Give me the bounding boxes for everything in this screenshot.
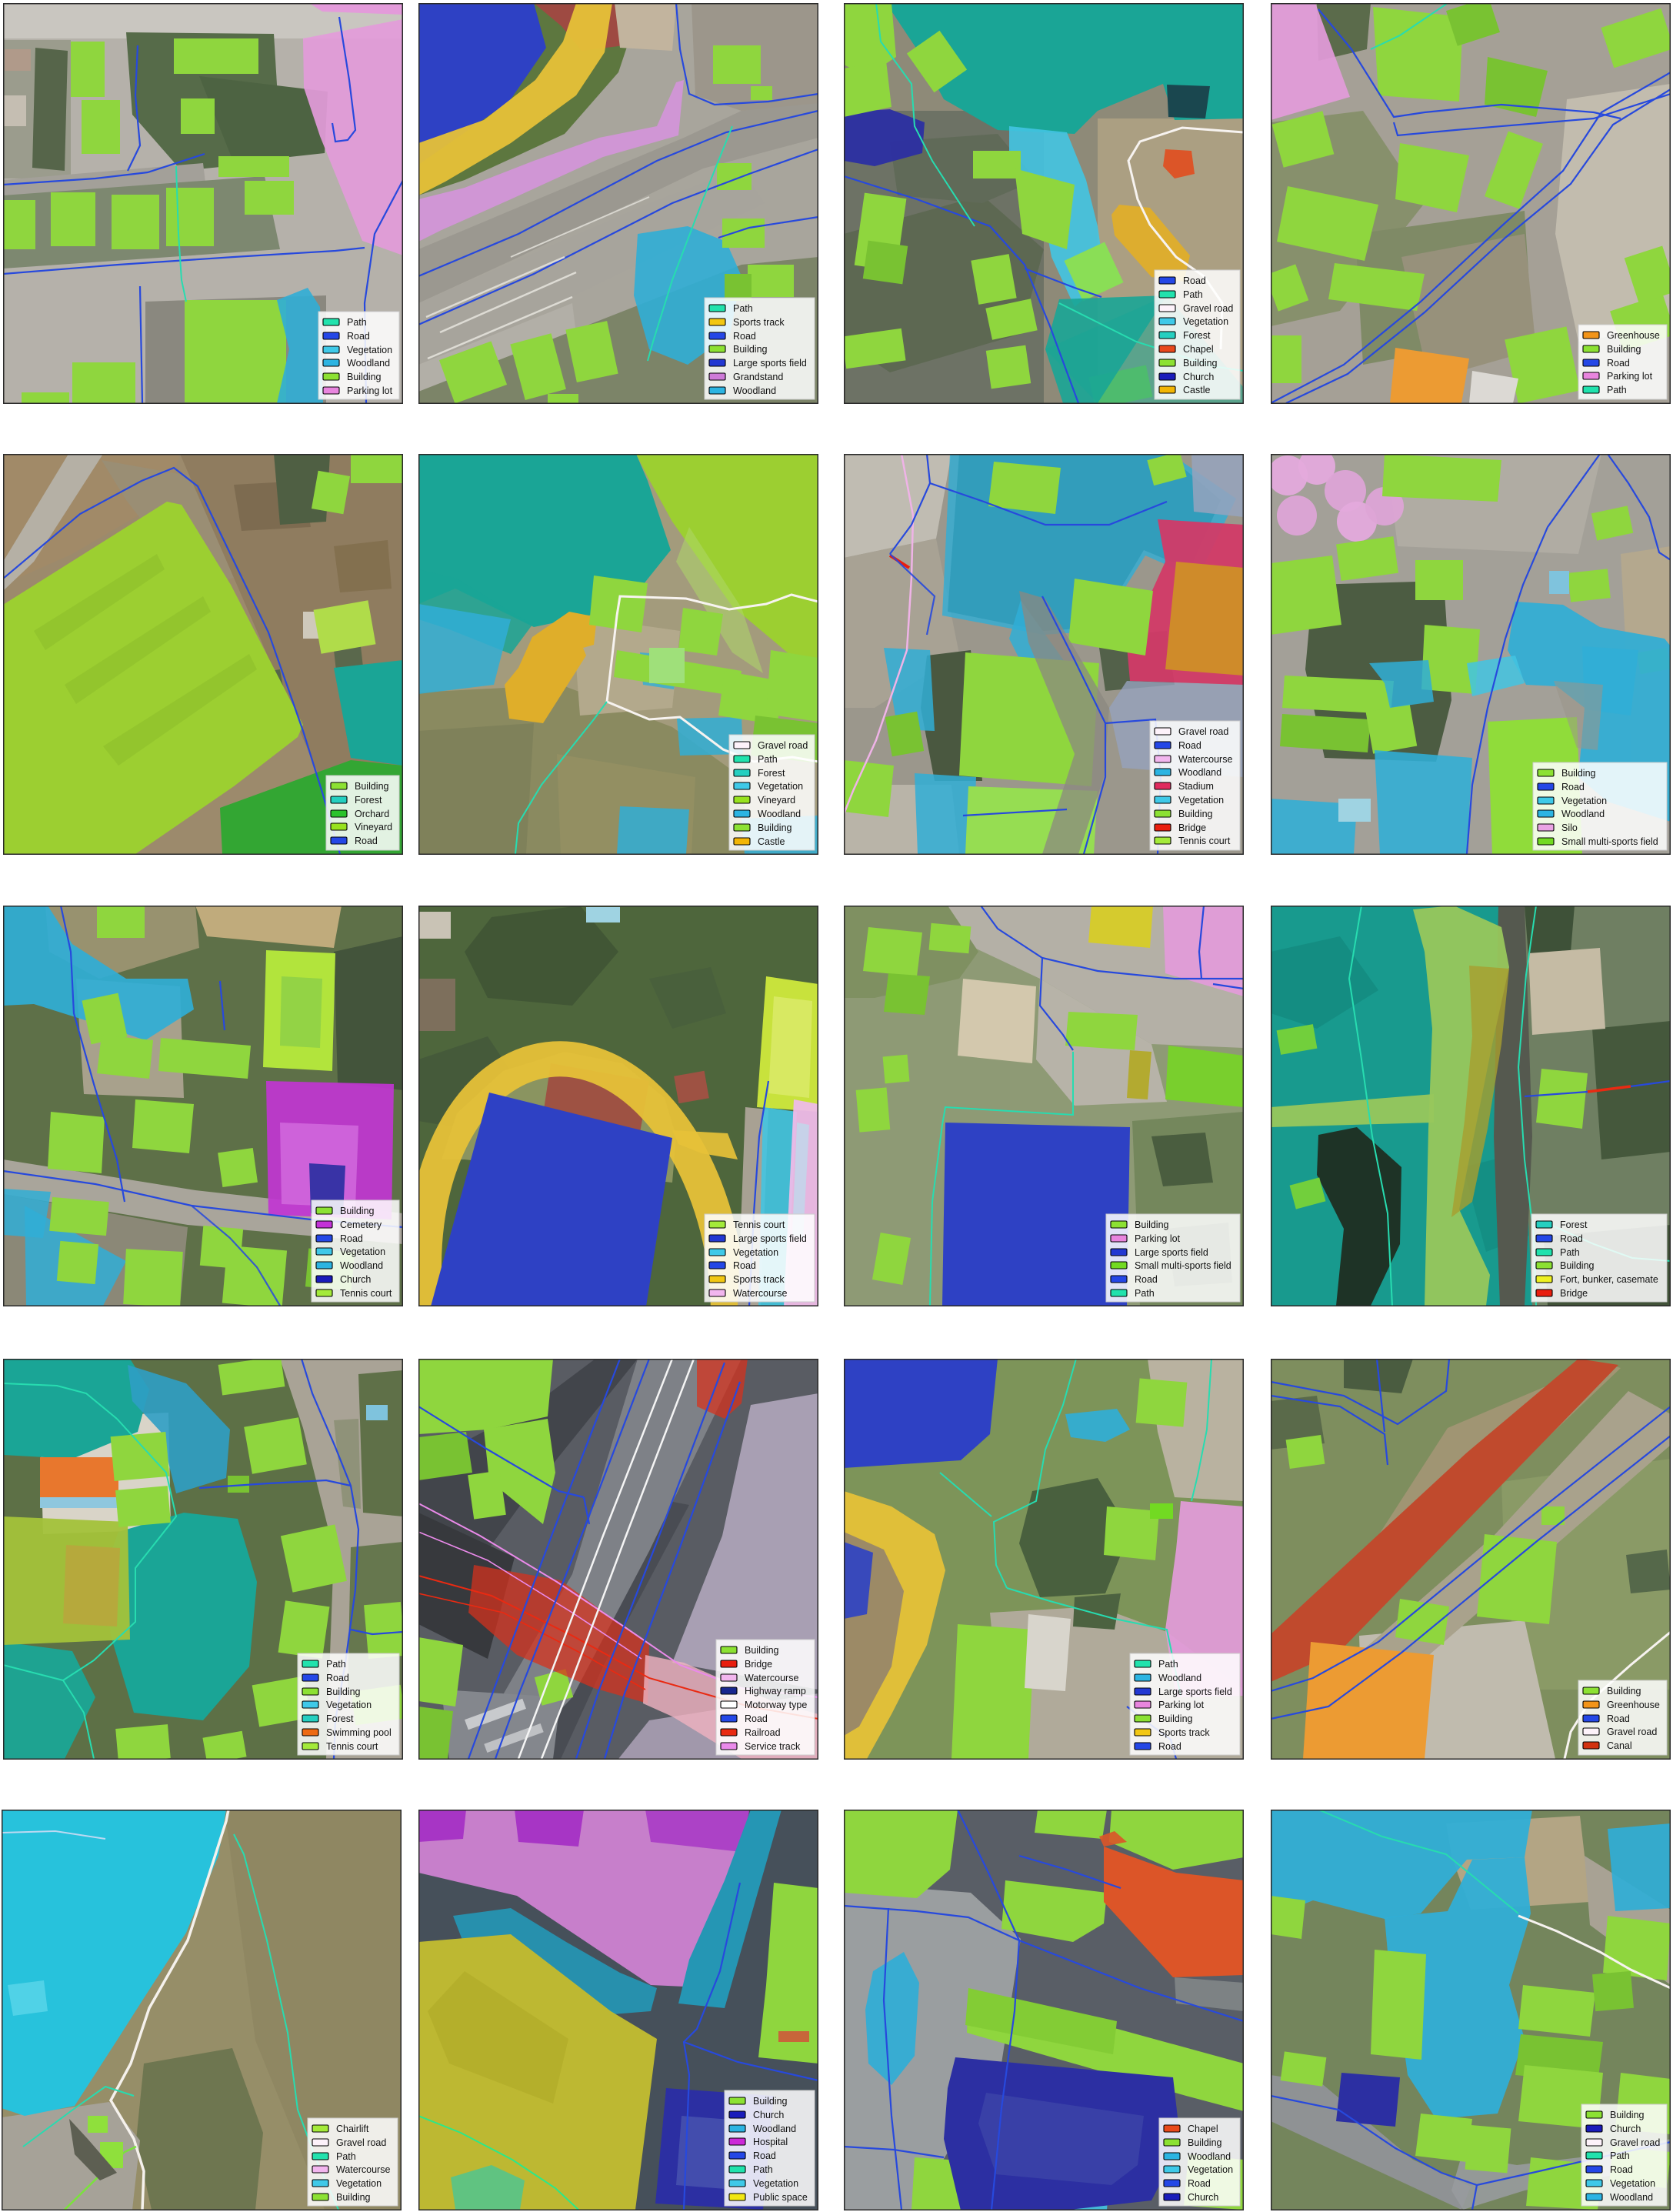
svg-text:Tennis court: Tennis court (340, 1288, 392, 1299)
svg-text:Sports track: Sports track (1158, 1727, 1210, 1738)
svg-text:Fort, bunker, casemate: Fort, bunker, casemate (1560, 1274, 1658, 1285)
svg-text:Road: Road (1607, 1713, 1630, 1724)
svg-text:Building: Building (336, 2192, 371, 2203)
svg-text:Woodland: Woodland (1178, 767, 1221, 778)
svg-text:Chairlift: Chairlift (336, 2124, 369, 2134)
svg-text:Gravel road: Gravel road (1610, 2137, 1660, 2148)
svg-text:Building: Building (1188, 2137, 1222, 2148)
svg-text:Parking lot: Parking lot (1158, 1700, 1205, 1710)
svg-text:Road: Road (1561, 782, 1585, 792)
svg-text:Vegetation: Vegetation (1183, 316, 1228, 327)
svg-text:Building: Building (1183, 358, 1218, 369)
svg-text:Vegetation: Vegetation (336, 2178, 382, 2189)
svg-text:Large sports field: Large sports field (1158, 1687, 1232, 1697)
svg-text:Public space: Public space (753, 2192, 808, 2203)
svg-text:Vegetation: Vegetation (1610, 2178, 1655, 2189)
svg-text:Vegetation: Vegetation (347, 345, 392, 355)
svg-text:Building: Building (340, 1206, 375, 1216)
svg-text:Path: Path (1560, 1247, 1580, 1258)
svg-text:Woodland: Woodland (753, 2124, 796, 2134)
svg-text:Grandstand: Grandstand (733, 372, 783, 382)
svg-text:Road: Road (1135, 1274, 1158, 1285)
svg-text:Church: Church (1610, 2124, 1641, 2134)
svg-text:Parking lot: Parking lot (1135, 1233, 1181, 1244)
svg-text:Road: Road (753, 2150, 776, 2161)
svg-text:Vegetation: Vegetation (1561, 796, 1607, 806)
svg-text:Vineyard: Vineyard (758, 795, 795, 806)
svg-text:Building: Building (733, 344, 768, 355)
svg-text:Gravel road: Gravel road (336, 2137, 386, 2148)
svg-text:Castle: Castle (758, 836, 785, 847)
svg-text:Building: Building (758, 822, 792, 833)
svg-text:Forest: Forest (355, 795, 382, 806)
svg-text:Tennis court: Tennis court (1178, 836, 1231, 846)
svg-text:Cemetery: Cemetery (340, 1219, 382, 1230)
svg-text:Tennis court: Tennis court (326, 1741, 378, 1752)
svg-text:Building: Building (347, 372, 382, 382)
svg-text:Woodland: Woodland (1561, 809, 1605, 819)
svg-text:Building: Building (1158, 1713, 1193, 1724)
svg-text:Vegetation: Vegetation (1178, 795, 1224, 806)
svg-text:Road: Road (1183, 275, 1206, 286)
svg-text:Watercourse: Watercourse (745, 1673, 798, 1683)
svg-text:Road: Road (340, 1233, 363, 1244)
svg-text:Vegetation: Vegetation (758, 781, 803, 792)
svg-text:Building: Building (355, 781, 389, 792)
svg-text:Path: Path (1158, 1659, 1178, 1670)
svg-text:Road: Road (733, 331, 756, 342)
svg-text:Watercourse: Watercourse (733, 1288, 787, 1299)
svg-text:Bridge: Bridge (1178, 822, 1206, 833)
svg-text:Motorway type: Motorway type (745, 1700, 807, 1710)
svg-text:Woodland: Woodland (347, 358, 390, 369)
svg-text:Forest: Forest (1183, 330, 1211, 341)
svg-text:Parking lot: Parking lot (1607, 371, 1653, 382)
svg-text:Building: Building (326, 1687, 361, 1697)
svg-text:Large sports field: Large sports field (1135, 1247, 1208, 1258)
svg-text:Greenhouse: Greenhouse (1607, 330, 1660, 341)
svg-text:Road: Road (1560, 1233, 1583, 1244)
svg-text:Forest: Forest (758, 768, 785, 779)
svg-text:Vegetation: Vegetation (326, 1700, 372, 1710)
svg-text:Woodland: Woodland (1188, 2151, 1231, 2162)
svg-text:Chapel: Chapel (1188, 2124, 1218, 2134)
svg-text:Road: Road (745, 1713, 768, 1724)
svg-text:Gravel road: Gravel road (1183, 303, 1233, 314)
svg-text:Greenhouse: Greenhouse (1607, 1700, 1660, 1710)
svg-text:Church: Church (753, 2110, 784, 2120)
svg-text:Path: Path (753, 2164, 773, 2175)
svg-text:Road: Road (1178, 740, 1201, 751)
svg-text:Road: Road (355, 836, 378, 846)
svg-text:Building: Building (1607, 344, 1641, 355)
svg-text:Railroad: Railroad (745, 1727, 781, 1738)
svg-text:Building: Building (1135, 1219, 1169, 1230)
svg-text:Sports track: Sports track (733, 317, 785, 328)
svg-text:Vegetation: Vegetation (340, 1246, 385, 1257)
svg-text:Gravel road: Gravel road (758, 740, 808, 751)
svg-text:Vegetation: Vegetation (1188, 2164, 1233, 2175)
svg-text:Path: Path (326, 1659, 346, 1670)
svg-text:Gravel road: Gravel road (1178, 726, 1228, 737)
svg-text:Small multi-sports field: Small multi-sports field (1561, 836, 1658, 847)
svg-text:Path: Path (1610, 2150, 1630, 2161)
svg-text:Large sports field: Large sports field (733, 1233, 807, 1244)
svg-text:Forest: Forest (1560, 1219, 1588, 1230)
svg-text:Path: Path (758, 754, 778, 765)
svg-text:Swimming pool: Swimming pool (326, 1727, 392, 1738)
svg-text:Path: Path (733, 303, 753, 314)
svg-text:Watercourse: Watercourse (336, 2164, 390, 2175)
svg-text:Road: Road (733, 1260, 756, 1271)
svg-text:Path: Path (336, 2151, 356, 2162)
svg-text:Gravel road: Gravel road (1607, 1727, 1657, 1737)
svg-text:Service track: Service track (745, 1741, 801, 1752)
svg-text:Sports track: Sports track (733, 1274, 785, 1285)
svg-text:Building: Building (1178, 809, 1213, 819)
svg-text:Chapel: Chapel (1183, 344, 1214, 355)
svg-text:Building: Building (1561, 768, 1596, 779)
svg-text:Building: Building (1560, 1260, 1595, 1271)
svg-text:Canal: Canal (1607, 1740, 1632, 1751)
svg-text:Building: Building (753, 2096, 788, 2107)
svg-text:Castle: Castle (1183, 385, 1210, 395)
svg-text:Vegetation: Vegetation (733, 1247, 778, 1258)
svg-text:Woodland: Woodland (1610, 2192, 1653, 2203)
svg-text:Watercourse: Watercourse (1178, 754, 1232, 765)
svg-text:Large sports field: Large sports field (733, 358, 807, 369)
svg-text:Woodland: Woodland (758, 809, 801, 819)
svg-text:Road: Road (347, 331, 370, 342)
svg-text:Church: Church (340, 1274, 371, 1285)
svg-text:Path: Path (1607, 385, 1627, 395)
svg-text:Vineyard: Vineyard (355, 822, 392, 832)
svg-text:Hospital: Hospital (753, 2137, 788, 2147)
svg-text:Road: Road (1158, 1741, 1181, 1752)
svg-text:Silo: Silo (1561, 822, 1578, 833)
svg-text:Small multi-sports field: Small multi-sports field (1135, 1260, 1231, 1271)
svg-text:Path: Path (1135, 1288, 1155, 1299)
svg-text:Road: Road (1610, 2164, 1633, 2175)
svg-text:Stadium: Stadium (1178, 781, 1214, 792)
svg-text:Building: Building (1607, 1686, 1641, 1697)
svg-text:Woodland: Woodland (1158, 1673, 1201, 1683)
svg-text:Bridge: Bridge (745, 1659, 772, 1670)
svg-text:Path: Path (1183, 289, 1203, 300)
svg-text:Church: Church (1188, 2192, 1218, 2203)
svg-text:Road: Road (326, 1673, 349, 1683)
svg-text:Orchard: Orchard (355, 809, 389, 819)
svg-text:Woodland: Woodland (733, 385, 776, 396)
svg-text:Building: Building (1610, 2110, 1645, 2120)
svg-text:Parking lot: Parking lot (347, 385, 393, 396)
svg-text:Road: Road (1188, 2178, 1211, 2189)
svg-text:Vegetation: Vegetation (753, 2178, 798, 2189)
svg-text:Building: Building (745, 1645, 779, 1656)
svg-text:Woodland: Woodland (340, 1260, 383, 1271)
svg-text:Forest: Forest (326, 1713, 354, 1724)
svg-text:Highway ramp: Highway ramp (745, 1686, 806, 1697)
svg-text:Tennis court: Tennis court (733, 1219, 785, 1230)
svg-text:Road: Road (1607, 358, 1630, 369)
svg-text:Path: Path (347, 317, 367, 328)
svg-text:Church: Church (1183, 372, 1214, 382)
svg-text:Bridge: Bridge (1560, 1288, 1588, 1299)
